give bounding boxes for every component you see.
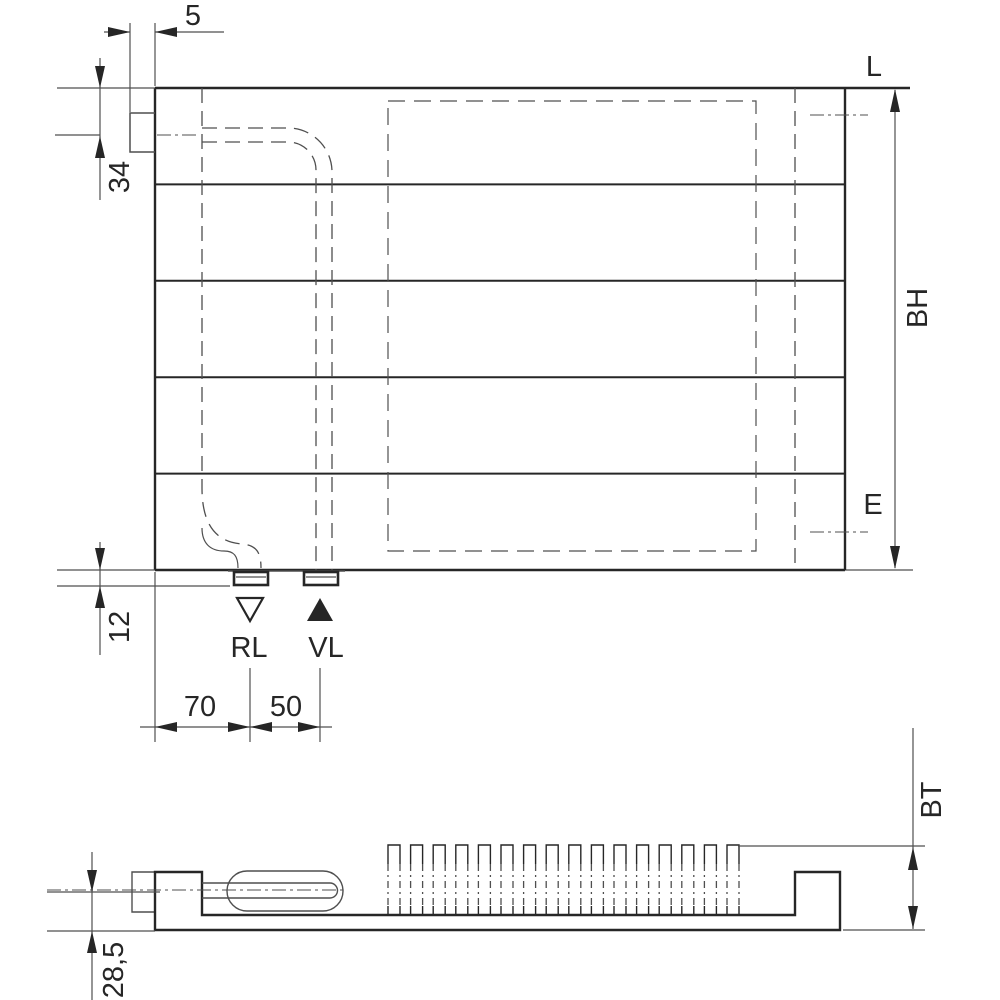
connection-stubs [228, 571, 345, 585]
fin [501, 906, 513, 915]
fin [614, 906, 626, 915]
build-height-label: BH [902, 288, 934, 328]
dim-top-to-center: 34 [57, 58, 155, 200]
front-view-dimensions: 5 34 BH L E 12 [57, 0, 934, 742]
dim-build-depth: BT [738, 728, 948, 930]
fin [478, 845, 490, 864]
front-view: RL VL [55, 88, 913, 664]
dim-top-to-center-label: 34 [104, 161, 136, 193]
fin [704, 845, 716, 864]
fin [546, 864, 558, 906]
fin [569, 906, 581, 915]
fin [456, 845, 468, 864]
fin [591, 845, 603, 864]
fin [546, 845, 558, 864]
fin [456, 906, 468, 915]
return-line-label: RL [230, 632, 267, 664]
fin [433, 906, 445, 915]
fin [637, 906, 649, 915]
dim-bracket-offset-label: 5 [185, 0, 201, 32]
fin [682, 906, 694, 915]
fin [727, 845, 739, 864]
dim-left-to-rl-label: 70 [184, 691, 216, 723]
bottom-view: BT 28,5 [47, 728, 948, 1000]
build-depth-label: BT [916, 781, 948, 818]
panel-profile [155, 872, 840, 930]
fin [501, 845, 513, 864]
return-flow-icon [237, 598, 263, 621]
fin [456, 864, 468, 906]
fin [704, 906, 716, 915]
hanger-distance-label: E [863, 489, 882, 521]
dim-rl-to-vl-label: 50 [270, 691, 302, 723]
fin [388, 864, 400, 906]
flow-symbols: RL VL [230, 598, 343, 664]
dim-bracket-offset: 5 [104, 0, 224, 112]
fin [727, 906, 739, 915]
fin [524, 864, 536, 906]
fin [411, 906, 423, 915]
fin [637, 845, 649, 864]
radiator-outline [155, 88, 913, 570]
fin [524, 845, 536, 864]
fin [433, 845, 445, 864]
fin [659, 864, 671, 906]
fin [569, 864, 581, 906]
dim-center-depth: 28,5 [47, 852, 160, 1000]
dim-bottom-to-stub-label: 12 [104, 611, 136, 643]
fin [682, 845, 694, 864]
dim-bottom-to-stub: 12 [57, 542, 230, 655]
fin [614, 864, 626, 906]
length-label: L [866, 51, 882, 83]
drawing-canvas: RL VL 5 34 BH L [0, 0, 1000, 1000]
fin [659, 845, 671, 864]
fin [388, 906, 400, 915]
centerline-markers [55, 115, 868, 532]
fin [591, 906, 603, 915]
fin [591, 864, 603, 906]
fin [388, 845, 400, 864]
fin [727, 864, 739, 906]
fin [614, 845, 626, 864]
fin [524, 906, 536, 915]
wall-bracket-tab [130, 113, 155, 152]
fin [433, 864, 445, 906]
fin [411, 845, 423, 864]
fin [704, 864, 716, 906]
fin [411, 864, 423, 906]
radiator-technical-drawing: RL VL 5 34 BH L [0, 0, 1000, 1000]
fin [501, 864, 513, 906]
supply-flow-icon [307, 598, 333, 621]
fin [637, 864, 649, 906]
hidden-lines [202, 88, 795, 570]
fin [659, 906, 671, 915]
fin [569, 845, 581, 864]
fin [546, 906, 558, 915]
dim-build-height: BH L E [863, 51, 934, 569]
fin [478, 864, 490, 906]
convector-fins [388, 845, 739, 915]
fin [682, 864, 694, 906]
fin [478, 906, 490, 915]
dim-center-depth-label: 28,5 [98, 942, 130, 998]
supply-line-label: VL [308, 632, 343, 664]
